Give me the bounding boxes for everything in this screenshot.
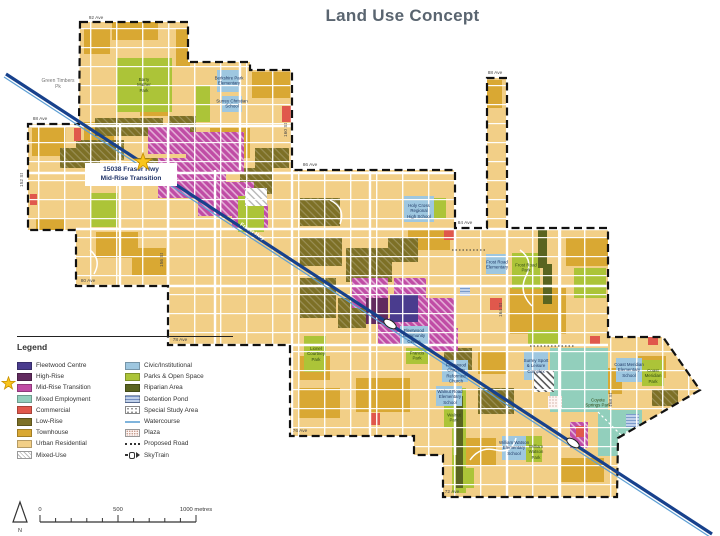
legend-label: Mixed-Use bbox=[36, 452, 67, 459]
legend-item-parks-open-space: Parks & Open Space bbox=[125, 371, 204, 382]
legend-label: Fleetwood Centre bbox=[36, 362, 86, 369]
legend-heading: Legend bbox=[17, 342, 237, 352]
legend-swatch bbox=[125, 395, 140, 403]
legend-swatch bbox=[125, 373, 140, 381]
legend-swatch bbox=[125, 406, 140, 414]
legend-swatch bbox=[125, 421, 140, 423]
legend-label: Low-Rise bbox=[36, 418, 63, 425]
legend-swatch bbox=[17, 451, 32, 459]
legend-label: SkyTrain bbox=[144, 452, 169, 459]
legend-item-fleetwood-centre: Fleetwood Centre bbox=[17, 360, 91, 371]
legend-item-commercial: Commercial bbox=[17, 405, 91, 416]
legend-item-proposed-road: Proposed Road bbox=[125, 438, 204, 449]
legend-label: Townhouse bbox=[36, 429, 68, 436]
legend-label: Mixed Employment bbox=[36, 396, 90, 403]
legend-item-townhouse: Townhouse bbox=[17, 427, 91, 438]
legend-label: Civic/Institutional bbox=[144, 362, 192, 369]
north-label: N bbox=[18, 528, 22, 534]
legend-item-plaza: Plaza bbox=[125, 427, 204, 438]
legend-item-watercourse: Watercourse bbox=[125, 416, 204, 427]
legend-top-rule bbox=[17, 336, 233, 337]
legend-label: Special Study Area bbox=[144, 407, 198, 414]
scale-bar: N 0 500 1000 metres bbox=[8, 498, 223, 536]
legend-item-riparian-area: Riparian Area bbox=[125, 382, 204, 393]
legend-label: High-Rise bbox=[36, 373, 64, 380]
legend-swatch bbox=[125, 451, 140, 459]
legend-swatch bbox=[17, 384, 32, 392]
legend-item-low-rise: Low-Rise bbox=[17, 416, 91, 427]
legend-swatch bbox=[125, 362, 140, 370]
legend-label: Detention Pond bbox=[144, 396, 188, 403]
legend-label: Watercourse bbox=[144, 418, 180, 425]
skytrain-symbol-part bbox=[136, 452, 140, 458]
legend-item-mixed-employment: Mixed Employment bbox=[17, 394, 91, 405]
skytrain-symbol-part bbox=[129, 452, 135, 459]
callout-mid-rise-transition: 15038 Fraser Hwy Mid-Rise Transition bbox=[85, 163, 177, 186]
legend-swatch bbox=[17, 429, 32, 437]
scale-label-end: 1000 metres bbox=[180, 507, 212, 513]
land-use-concept-page: { "title": "Land Use Concept", "callout"… bbox=[0, 0, 720, 536]
scale-label-mid: 500 bbox=[113, 507, 123, 513]
legend-item-mid-rise-transition: Mid-Rise Transition bbox=[17, 382, 91, 393]
legend-label: Parks & Open Space bbox=[144, 373, 204, 380]
star-icon bbox=[1, 376, 16, 396]
legend-label: Urban Residential bbox=[36, 440, 87, 447]
scale-ticks bbox=[40, 515, 196, 522]
legend-item-civic-institutional: Civic/Institutional bbox=[125, 360, 204, 371]
legend-swatch bbox=[125, 384, 140, 392]
legend-item-mixed-use: Mixed-Use bbox=[17, 450, 91, 461]
legend-item-special-study-area: Special Study Area bbox=[125, 405, 204, 416]
legend-swatch bbox=[17, 373, 32, 381]
legend-swatch bbox=[17, 362, 32, 370]
legend-panel: Legend Fleetwood CentreHigh-RiseMid-Rise… bbox=[17, 336, 237, 470]
legend-label: Proposed Road bbox=[144, 440, 188, 447]
legend-label: Commercial bbox=[36, 407, 70, 414]
legend-label: Mid-Rise Transition bbox=[36, 384, 91, 391]
legend-item-skytrain: SkyTrain bbox=[125, 450, 204, 461]
legend-swatch bbox=[17, 440, 32, 448]
north-arrow-icon bbox=[13, 502, 27, 522]
legend-item-high-rise: High-Rise bbox=[17, 371, 91, 382]
legend-label: Riparian Area bbox=[144, 384, 183, 391]
legend-swatch bbox=[17, 395, 32, 403]
legend-item-urban-residential: Urban Residential bbox=[17, 438, 91, 449]
legend-swatch bbox=[125, 443, 140, 445]
scale-label-start: 0 bbox=[38, 507, 41, 513]
legend-swatch bbox=[17, 418, 32, 426]
legend-swatch bbox=[17, 406, 32, 414]
skytrain-symbol-part bbox=[125, 454, 128, 456]
star-icon bbox=[133, 152, 153, 172]
legend-swatch bbox=[125, 429, 140, 437]
legend-item-detention-pond: Detention Pond bbox=[125, 394, 204, 405]
legend-label: Plaza bbox=[144, 429, 160, 436]
